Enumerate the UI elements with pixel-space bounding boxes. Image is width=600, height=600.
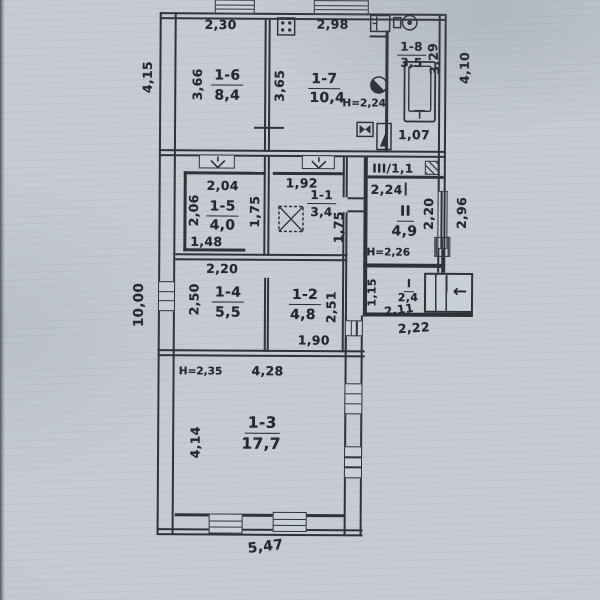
- wall: [264, 278, 269, 352]
- dim-exterior-right-upper: 4,10: [457, 52, 472, 84]
- dim-1-2-opening: 1,90: [298, 332, 330, 347]
- dim-1-1-width: 1,92: [286, 175, 318, 190]
- room-1-2-area: 4,8: [290, 307, 316, 323]
- window: [215, 0, 255, 14]
- water-heater-icon: [369, 75, 388, 94]
- stove-icon: [277, 17, 296, 36]
- room-II-number: II: [397, 204, 414, 222]
- room-III-label: III/1,1: [372, 161, 413, 175]
- wall: [343, 157, 348, 197]
- door-opening-tick: [348, 197, 364, 199]
- room-1-8-area: 3,5: [400, 56, 422, 70]
- height-note-1-7: H=2,24: [342, 97, 386, 109]
- dimension-tick: [405, 183, 407, 196]
- room-1-4-area: 5,5: [215, 304, 241, 320]
- room-1-6-area: 8,4: [214, 87, 240, 103]
- room-1-3-area: 17,7: [241, 435, 281, 453]
- dim-1-5-depth2: 1,75: [247, 196, 262, 228]
- dim-1-8-depth: 3,29: [425, 42, 443, 75]
- room-1-2-number: 1-2: [289, 287, 321, 305]
- stairs-steps-icon: [426, 275, 450, 311]
- dim-1-5-depth: 2,06: [186, 194, 201, 226]
- room-1-5-number: 1-5: [206, 198, 238, 216]
- dim-1-6-width: 2,30: [205, 17, 237, 32]
- dim-1-3-width: 4,28: [251, 363, 283, 378]
- wall: [175, 253, 347, 261]
- wall: [175, 513, 345, 517]
- window: [344, 383, 362, 414]
- dim-1-8-width: 1,07: [398, 127, 430, 142]
- wall: [158, 349, 365, 357]
- wall: [363, 263, 444, 267]
- dim-I-width-outer: 2,22: [397, 319, 430, 336]
- window: [314, 0, 369, 14]
- dim-1-4-width: 2,20: [206, 261, 238, 276]
- dim-1-4-depth: 2,50: [186, 283, 201, 315]
- room-1-7-area: 10,4: [309, 90, 345, 106]
- height-note-II: H=2,26: [367, 246, 411, 258]
- dim-II-width: 2,24: [371, 182, 403, 197]
- window: [209, 513, 243, 533]
- chimney-hatch: [434, 237, 450, 257]
- dim-exterior-bottom: 5,47: [247, 537, 284, 557]
- scanned-floorplan-page: ← 1: [0, 0, 600, 600]
- dim-1-3-depth: 4,14: [188, 426, 203, 458]
- room-1-4-number: 1-4: [212, 284, 244, 302]
- entrance-arrow-icon: ←: [453, 282, 467, 302]
- room-1-1-area: 3,4: [310, 205, 332, 219]
- wall: [157, 12, 177, 534]
- staircase: ←: [424, 273, 473, 313]
- wall: [157, 528, 363, 536]
- dim-1-5-width: 2,04: [207, 178, 239, 193]
- dim-1-7-depth: 3,65: [272, 70, 287, 102]
- door-swing-icon: [302, 155, 335, 169]
- wall: [263, 157, 270, 256]
- sink-icon: [370, 14, 391, 32]
- floorplan-drawing: ← 1: [0, 0, 600, 600]
- room-II-area: 4,9: [392, 224, 418, 240]
- door-opening-tick: [348, 210, 364, 212]
- chimney-hatch: [425, 161, 439, 175]
- door-swing-icon: [199, 154, 235, 168]
- room-I-number: I: [404, 277, 414, 292]
- wall: [363, 312, 473, 317]
- dim-exterior-left-lower: 10,00: [131, 283, 147, 327]
- dim-exterior-left-upper: 4,15: [140, 61, 155, 93]
- dim-exterior-right-mid: 2,96: [454, 197, 469, 229]
- room-1-3-number: 1-3: [245, 414, 280, 434]
- wall: [366, 175, 444, 178]
- dim-1-5-width2: 1,48: [190, 234, 222, 249]
- room-1-5-area: 4,0: [210, 217, 236, 233]
- scan-edge: [0, 0, 5, 600]
- room-1-7-number: 1-7: [308, 71, 340, 89]
- window: [273, 512, 307, 532]
- toilet-icon: [393, 14, 420, 32]
- boiler-wedge-icon: [376, 122, 392, 150]
- door-opening-tick: [254, 127, 284, 129]
- dim-II-depth: 2,20: [421, 198, 436, 230]
- wall: [264, 19, 271, 152]
- window: [344, 446, 362, 478]
- gas-meter-icon: [356, 121, 374, 137]
- dim-1-6-depth: 3,66: [190, 68, 205, 100]
- dim-I-depth: 1,15: [365, 278, 378, 306]
- dim-1-1-depth: 1,75: [331, 211, 346, 243]
- vent-shaft-icon: [277, 205, 304, 233]
- dim-1-2-depth: 2,51: [323, 291, 338, 323]
- wall: [370, 35, 389, 37]
- height-note-1-3: H=2,35: [179, 365, 223, 377]
- room-1-6-number: 1-6: [211, 67, 243, 85]
- wall: [184, 171, 266, 175]
- room-1-8-number: 1-8: [397, 40, 426, 56]
- window: [345, 320, 363, 336]
- window: [158, 281, 175, 311]
- dim-1-7-width: 2,98: [317, 17, 349, 32]
